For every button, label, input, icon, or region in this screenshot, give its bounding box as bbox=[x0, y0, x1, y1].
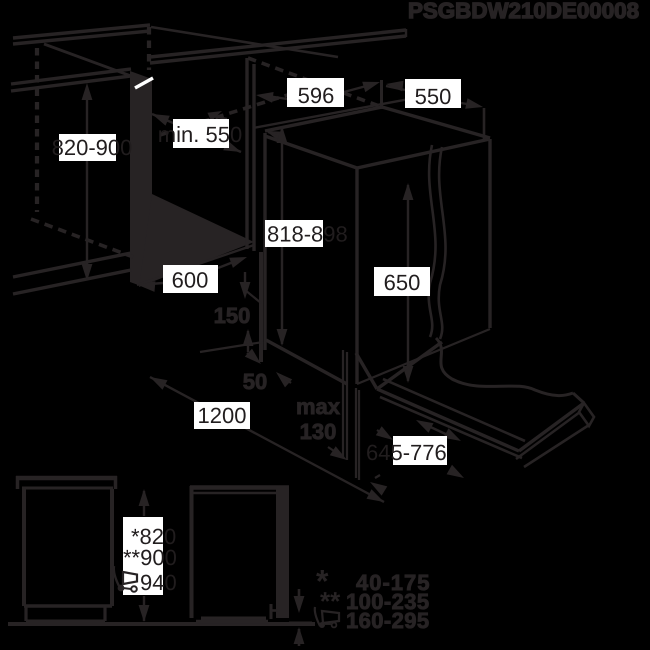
svg-text:650: 650 bbox=[384, 270, 421, 295]
svg-text:820-900: 820-900 bbox=[52, 135, 133, 160]
svg-text:130: 130 bbox=[300, 419, 337, 444]
svg-text:**900: **900 bbox=[123, 545, 177, 570]
svg-text:PSGBDW210DE00008: PSGBDW210DE00008 bbox=[408, 0, 639, 23]
svg-text:1200: 1200 bbox=[198, 403, 247, 428]
svg-text:940: 940 bbox=[140, 570, 177, 595]
svg-text:min. 550: min. 550 bbox=[158, 122, 242, 147]
svg-text:50: 50 bbox=[243, 369, 267, 394]
svg-text:600: 600 bbox=[172, 268, 209, 293]
svg-text:645-776: 645-776 bbox=[366, 440, 447, 465]
svg-text:550: 550 bbox=[415, 84, 452, 109]
svg-text:818-898: 818-898 bbox=[267, 222, 348, 247]
svg-text:596: 596 bbox=[298, 83, 335, 108]
svg-text:max: max bbox=[296, 394, 341, 419]
svg-text:150: 150 bbox=[214, 303, 251, 328]
svg-text:160-295: 160-295 bbox=[346, 608, 430, 633]
